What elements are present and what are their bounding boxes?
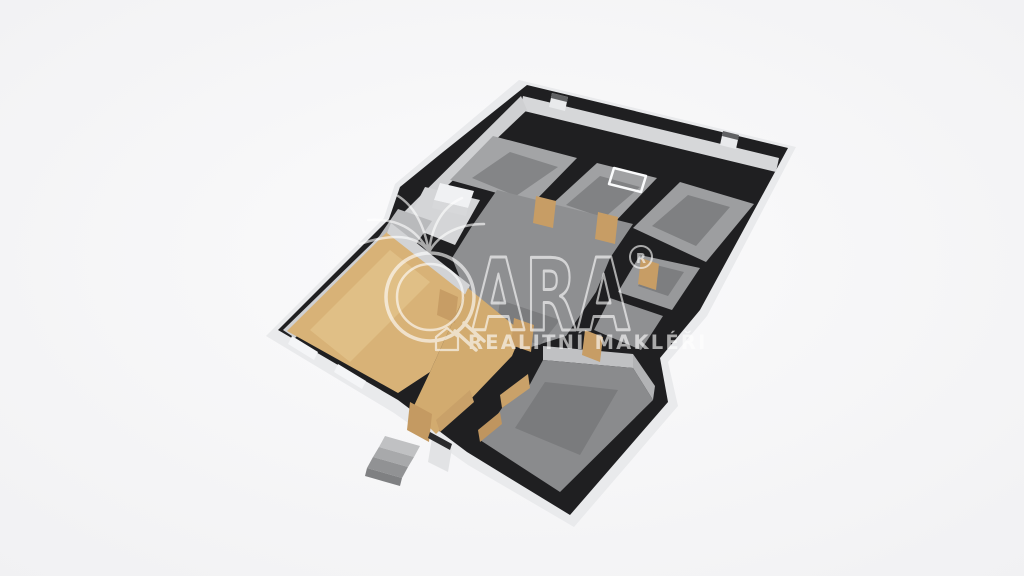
tagline-text: REALITNÍ MAKLÉŘI [468, 331, 708, 354]
door-panel-1 [533, 196, 556, 228]
floorplan-render: ARARREALITNÍ MAKLÉŘI [0, 0, 1024, 576]
registered-text: R [636, 252, 646, 267]
